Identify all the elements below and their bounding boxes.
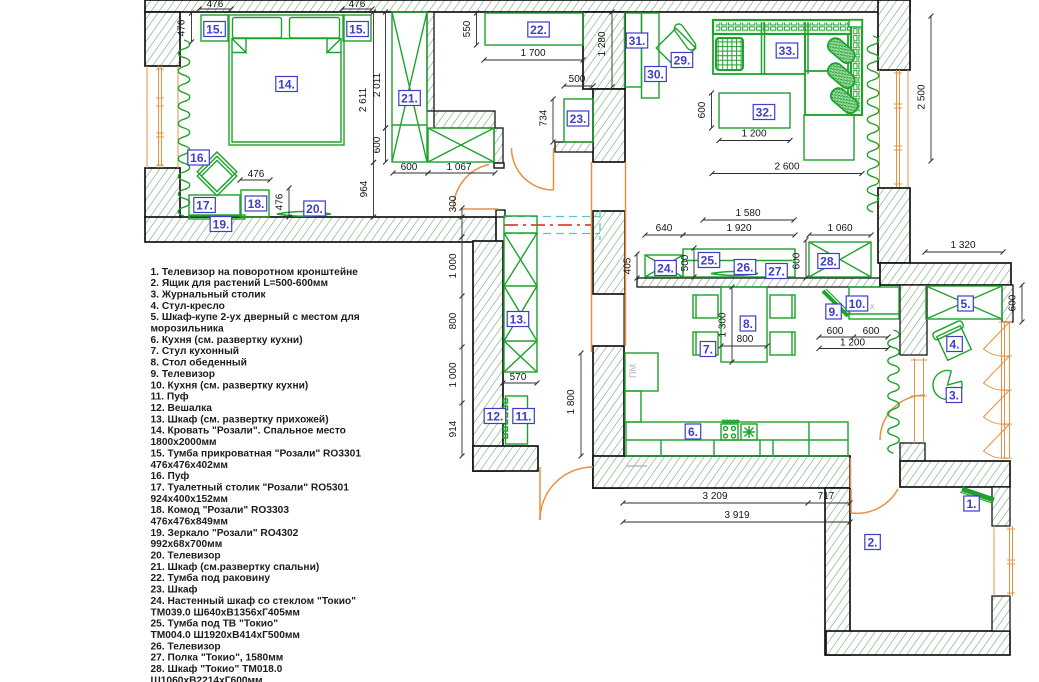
svg-text:26. Телевизор: 26. Телевизор xyxy=(151,641,221,652)
svg-text:20.: 20. xyxy=(306,202,323,216)
svg-text:3 919: 3 919 xyxy=(724,510,749,521)
svg-text:13.: 13. xyxy=(510,313,527,327)
svg-text:31.: 31. xyxy=(629,34,646,48)
svg-text:24. Настенный шкаф со стеклом: 24. Настенный шкаф со стеклом "Токио" xyxy=(151,595,357,607)
svg-text:24.: 24. xyxy=(657,262,674,276)
svg-text:1 920: 1 920 xyxy=(726,223,751,234)
svg-text:1. Телевизор на поворотном кро: 1. Телевизор на поворотном кронштейне xyxy=(151,267,359,278)
svg-text:300: 300 xyxy=(448,195,459,212)
svg-text:ТМ004.0 Ш1920хВ414хГ500мм: ТМ004.0 Ш1920хВ414хГ500мм xyxy=(151,630,300,641)
svg-text:1 200: 1 200 xyxy=(741,129,766,140)
svg-text:924х400х152мм: 924х400х152мм xyxy=(151,494,228,505)
svg-text:600: 600 xyxy=(372,136,383,153)
svg-text:14. Кровать "Розали". Спальное: 14. Кровать "Розали". Спальное место xyxy=(151,426,346,437)
svg-text:1 580: 1 580 xyxy=(735,208,760,219)
svg-text:14.: 14. xyxy=(278,78,295,92)
svg-text:морозильника: морозильника xyxy=(151,324,225,335)
svg-text:28. Шкаф "Токио" ТМ018.0: 28. Шкаф "Токио" ТМ018.0 xyxy=(151,663,283,675)
svg-text:8. Стол обеденный: 8. Стол обеденный xyxy=(151,357,247,369)
svg-text:2 500: 2 500 xyxy=(917,84,928,109)
svg-text:1 800: 1 800 xyxy=(566,389,577,414)
svg-text:570: 570 xyxy=(510,372,527,383)
svg-text:19.: 19. xyxy=(213,218,230,232)
svg-text:17.: 17. xyxy=(196,199,213,213)
svg-text:964: 964 xyxy=(359,180,370,197)
svg-text:26.: 26. xyxy=(737,261,754,275)
svg-text:734: 734 xyxy=(539,109,550,126)
svg-text:28.: 28. xyxy=(820,255,837,269)
svg-text:1 300: 1 300 xyxy=(718,312,729,337)
svg-text:30.: 30. xyxy=(647,68,664,82)
svg-text:19. Зеркало "Розали" RO4302: 19. Зеркало "Розали" RO4302 xyxy=(151,528,299,539)
svg-text:405: 405 xyxy=(623,257,634,274)
svg-text:476: 476 xyxy=(248,169,265,180)
svg-text:22. Тумба под раковину: 22. Тумба под раковину xyxy=(151,572,271,584)
svg-text:800: 800 xyxy=(737,334,754,345)
svg-text:1 000: 1 000 xyxy=(448,253,459,278)
svg-text:1 280: 1 280 xyxy=(597,31,608,56)
svg-text:476: 476 xyxy=(275,193,286,210)
svg-text:23.: 23. xyxy=(570,112,587,126)
svg-text:9. Телевизор: 9. Телевизор xyxy=(151,369,216,380)
svg-text:25.: 25. xyxy=(701,254,718,268)
svg-text:29.: 29. xyxy=(674,54,691,68)
svg-text:27.: 27. xyxy=(768,265,785,279)
svg-text:3. Журнальный столик: 3. Журнальный столик xyxy=(151,290,267,301)
svg-text:5.: 5. xyxy=(960,297,970,311)
svg-text:600: 600 xyxy=(827,326,844,337)
svg-text:5. Шкаф-купе 2-ух дверный с ме: 5. Шкаф-купе 2-ух дверный с местом для xyxy=(151,311,360,323)
svg-text:12.: 12. xyxy=(487,410,504,424)
svg-text:11.: 11. xyxy=(515,410,531,424)
svg-text:476: 476 xyxy=(349,0,366,10)
svg-text:6. Кухня (см. развертку кухни): 6. Кухня (см. развертку кухни) xyxy=(151,335,303,346)
svg-text:914: 914 xyxy=(448,420,459,437)
svg-text:11. Пуф: 11. Пуф xyxy=(151,391,189,403)
svg-text:Ш1060хВ2214хГ600мм: Ш1060хВ2214хГ600мм xyxy=(151,675,263,682)
svg-text:25. Тумба под ТВ "Токио": 25. Тумба под ТВ "Токио" xyxy=(151,618,279,630)
svg-text:500: 500 xyxy=(680,254,691,271)
svg-text:10.: 10. xyxy=(849,297,866,311)
svg-text:15.: 15. xyxy=(349,23,366,37)
svg-text:2 011: 2 011 xyxy=(372,72,383,97)
svg-text:2 611: 2 611 xyxy=(358,87,369,112)
svg-text:2 600: 2 600 xyxy=(774,162,799,173)
svg-text:2.: 2. xyxy=(867,536,877,550)
svg-text:17. Туалетный столик "Розали": 17. Туалетный столик "Розали" RO5301 xyxy=(151,483,350,494)
svg-text:476: 476 xyxy=(207,0,224,10)
svg-text:4. Стул-кресло: 4. Стул-кресло xyxy=(151,301,225,312)
svg-text:600: 600 xyxy=(401,162,418,173)
svg-text:1 200: 1 200 xyxy=(840,338,865,349)
svg-text:476х476х849мм: 476х476х849мм xyxy=(151,517,228,528)
svg-text:15. Тумба прикроватная "Розали: 15. Тумба прикроватная "Розали" RO3301 xyxy=(151,447,362,459)
svg-text:6.: 6. xyxy=(688,425,698,439)
svg-text:13. Шкаф (см. развертку прихож: 13. Шкаф (см. развертку прихожей) xyxy=(151,413,329,425)
svg-text:22.: 22. xyxy=(530,23,547,37)
svg-text:600: 600 xyxy=(1008,294,1019,311)
svg-text:15.: 15. xyxy=(206,23,223,37)
svg-text:1 000: 1 000 xyxy=(448,362,459,387)
svg-text:3.: 3. xyxy=(949,389,959,403)
svg-text:1 060: 1 060 xyxy=(827,223,852,234)
svg-text:9.: 9. xyxy=(828,305,838,319)
svg-text:7. Стул кухонный: 7. Стул кухонный xyxy=(151,346,240,357)
svg-text:1800х2000мм: 1800х2000мм xyxy=(151,437,217,448)
svg-text:1.: 1. xyxy=(966,497,976,511)
svg-text:27. Полка "Токио", 1580мм: 27. Полка "Токио", 1580мм xyxy=(151,653,284,664)
svg-text:600: 600 xyxy=(697,101,708,118)
svg-text:33.: 33. xyxy=(779,44,796,58)
svg-text:992х68х700мм: 992х68х700мм xyxy=(151,539,223,550)
svg-text:1 067: 1 067 xyxy=(446,162,471,173)
svg-text:600: 600 xyxy=(863,326,880,337)
svg-text:550: 550 xyxy=(462,20,473,37)
svg-text:3 209: 3 209 xyxy=(702,491,727,502)
svg-text:12. Вешалка: 12. Вешалка xyxy=(151,403,213,414)
svg-text:1 320: 1 320 xyxy=(950,240,975,251)
svg-text:21. Шкаф (см.развертку спальни: 21. Шкаф (см.развертку спальни) xyxy=(151,561,320,573)
svg-text:600: 600 xyxy=(792,252,803,269)
svg-text:18. Комод "Розали" RO3303: 18. Комод "Розали" RO3303 xyxy=(151,505,290,516)
svg-text:4.: 4. xyxy=(949,338,959,352)
svg-text:1 700: 1 700 xyxy=(520,48,545,59)
svg-text:10. Кухня (см. развертку кухни: 10. Кухня (см. развертку кухни) xyxy=(151,380,309,391)
svg-text:18.: 18. xyxy=(248,197,265,211)
svg-text:476х476х402мм: 476х476х402мм xyxy=(151,460,228,471)
svg-text:7.: 7. xyxy=(703,343,713,357)
svg-text:20. Телевизор: 20. Телевизор xyxy=(151,551,221,562)
svg-text:717: 717 xyxy=(818,491,835,502)
svg-text:500: 500 xyxy=(569,74,586,85)
svg-text:32.: 32. xyxy=(756,106,773,120)
svg-text:476: 476 xyxy=(177,19,188,36)
svg-text:ПМ: ПМ xyxy=(628,364,638,378)
svg-text:8.: 8. xyxy=(743,317,753,331)
svg-text:800: 800 xyxy=(448,312,459,329)
svg-text:640: 640 xyxy=(656,223,673,234)
svg-text:16.: 16. xyxy=(190,151,207,165)
svg-text:21.: 21. xyxy=(401,92,418,106)
svg-text:16. Пуф: 16. Пуф xyxy=(151,470,190,482)
svg-text:2. Ящик для растений L=500-600: 2. Ящик для растений L=500-600мм xyxy=(151,278,329,289)
svg-text:х: х xyxy=(870,301,875,311)
svg-text:ТМ039.0 Ш640хВ1356хГ405мм: ТМ039.0 Ш640хВ1356хГ405мм xyxy=(151,607,300,618)
svg-text:23. Шкаф: 23. Шкаф xyxy=(151,584,198,596)
